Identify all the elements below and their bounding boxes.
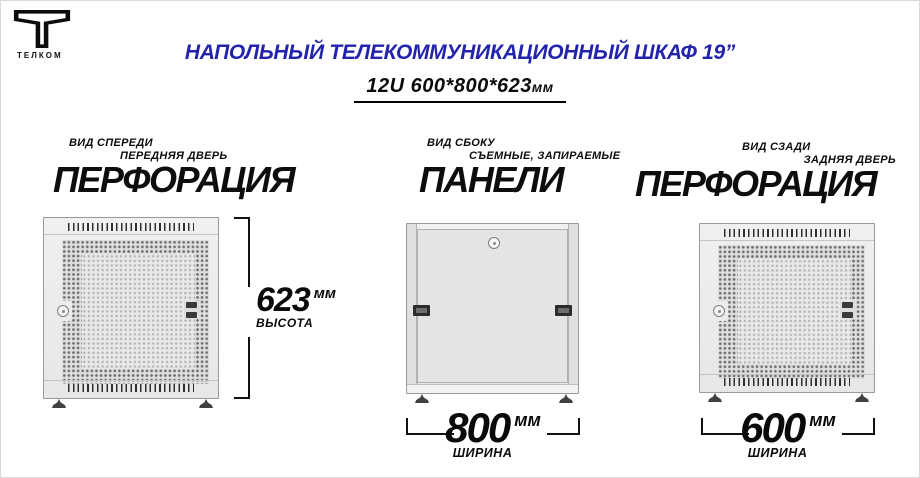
door-bottom-seam xyxy=(700,374,874,375)
perforation-center xyxy=(82,254,195,369)
door-handle-slot xyxy=(184,301,199,319)
vent-slots-top xyxy=(68,223,194,231)
front-feature-label: ПЕРФОРАЦИЯ xyxy=(53,159,294,201)
vent-slots-top xyxy=(724,229,850,237)
width-value-wrap: 800мм xyxy=(406,404,580,452)
panel-lock-icon xyxy=(488,237,500,249)
door-lock-icon xyxy=(713,305,725,317)
infographic-canvas: ТЕЛКОМ НАПОЛЬНЫЙ ТЕЛЕКОММУНИКАЦИОННЫЙ ШК… xyxy=(0,0,920,478)
cabinet-front-view xyxy=(43,217,219,399)
side-view-label: ВИД СБОКУ xyxy=(427,137,495,149)
height-dimension: 623мм ВЫСОТА xyxy=(234,217,364,399)
width-value-wrap: 600мм xyxy=(701,404,875,452)
rear-feature-label: ПЕРФОРАЦИЯ xyxy=(635,163,876,205)
dim-line xyxy=(248,217,250,287)
leveling-foot xyxy=(559,394,573,403)
dim-line xyxy=(248,337,250,399)
bottom-rail xyxy=(407,384,578,393)
side-feature-label: ПАНЕЛИ xyxy=(419,159,563,201)
width-label: ШИРИНА xyxy=(406,446,559,460)
vent-slots-bottom xyxy=(68,384,194,392)
product-size-subtitle: 12U 600*800*623мм xyxy=(354,75,565,103)
perforation-center xyxy=(738,259,851,364)
height-label: ВЫСОТА xyxy=(256,316,336,330)
door-handle-slot xyxy=(840,301,855,319)
subtitle-unit: мм xyxy=(532,79,554,95)
rear-view-label: ВИД СЗАДИ xyxy=(742,141,811,153)
width-dimension-side: 800мм ШИРИНА xyxy=(406,408,580,466)
width-value: 600 xyxy=(740,404,804,451)
panel-handle-right xyxy=(555,305,572,316)
width-label: ШИРИНА xyxy=(701,446,854,460)
height-value: 623 xyxy=(256,281,310,319)
dim-tick xyxy=(234,217,249,219)
cabinet-side-view xyxy=(406,223,579,394)
door-top-seam xyxy=(44,234,218,235)
door-top-seam xyxy=(700,240,874,241)
vent-slots-bottom xyxy=(724,378,850,386)
door-lock-icon xyxy=(57,305,69,317)
leveling-foot xyxy=(415,394,429,403)
leveling-foot xyxy=(52,399,66,408)
removable-side-panel xyxy=(417,229,568,383)
page-title: НАПОЛЬНЫЙ ТЕЛЕКОММУНИКАЦИОННЫЙ ШКАФ 19” xyxy=(1,41,919,65)
front-view-label: ВИД СПЕРЕДИ xyxy=(69,137,153,149)
cabinet-rear-view xyxy=(699,223,875,393)
width-dimension-rear: 600мм ШИРИНА xyxy=(701,408,875,466)
leveling-foot xyxy=(708,393,722,402)
width-unit: мм xyxy=(514,410,541,430)
width-unit: мм xyxy=(809,410,836,430)
leveling-foot xyxy=(199,399,213,408)
panel-handle-left xyxy=(413,305,430,316)
width-value: 800 xyxy=(445,404,509,451)
door-bottom-seam xyxy=(44,380,218,381)
height-unit: мм xyxy=(314,285,336,302)
leveling-foot xyxy=(855,393,869,402)
dim-tick xyxy=(234,397,249,399)
height-value-wrap: 623мм ВЫСОТА xyxy=(256,281,336,330)
subtitle-wrap: 12U 600*800*623мм xyxy=(1,75,919,103)
subtitle-main: 12U 600*800*623 xyxy=(366,75,531,97)
